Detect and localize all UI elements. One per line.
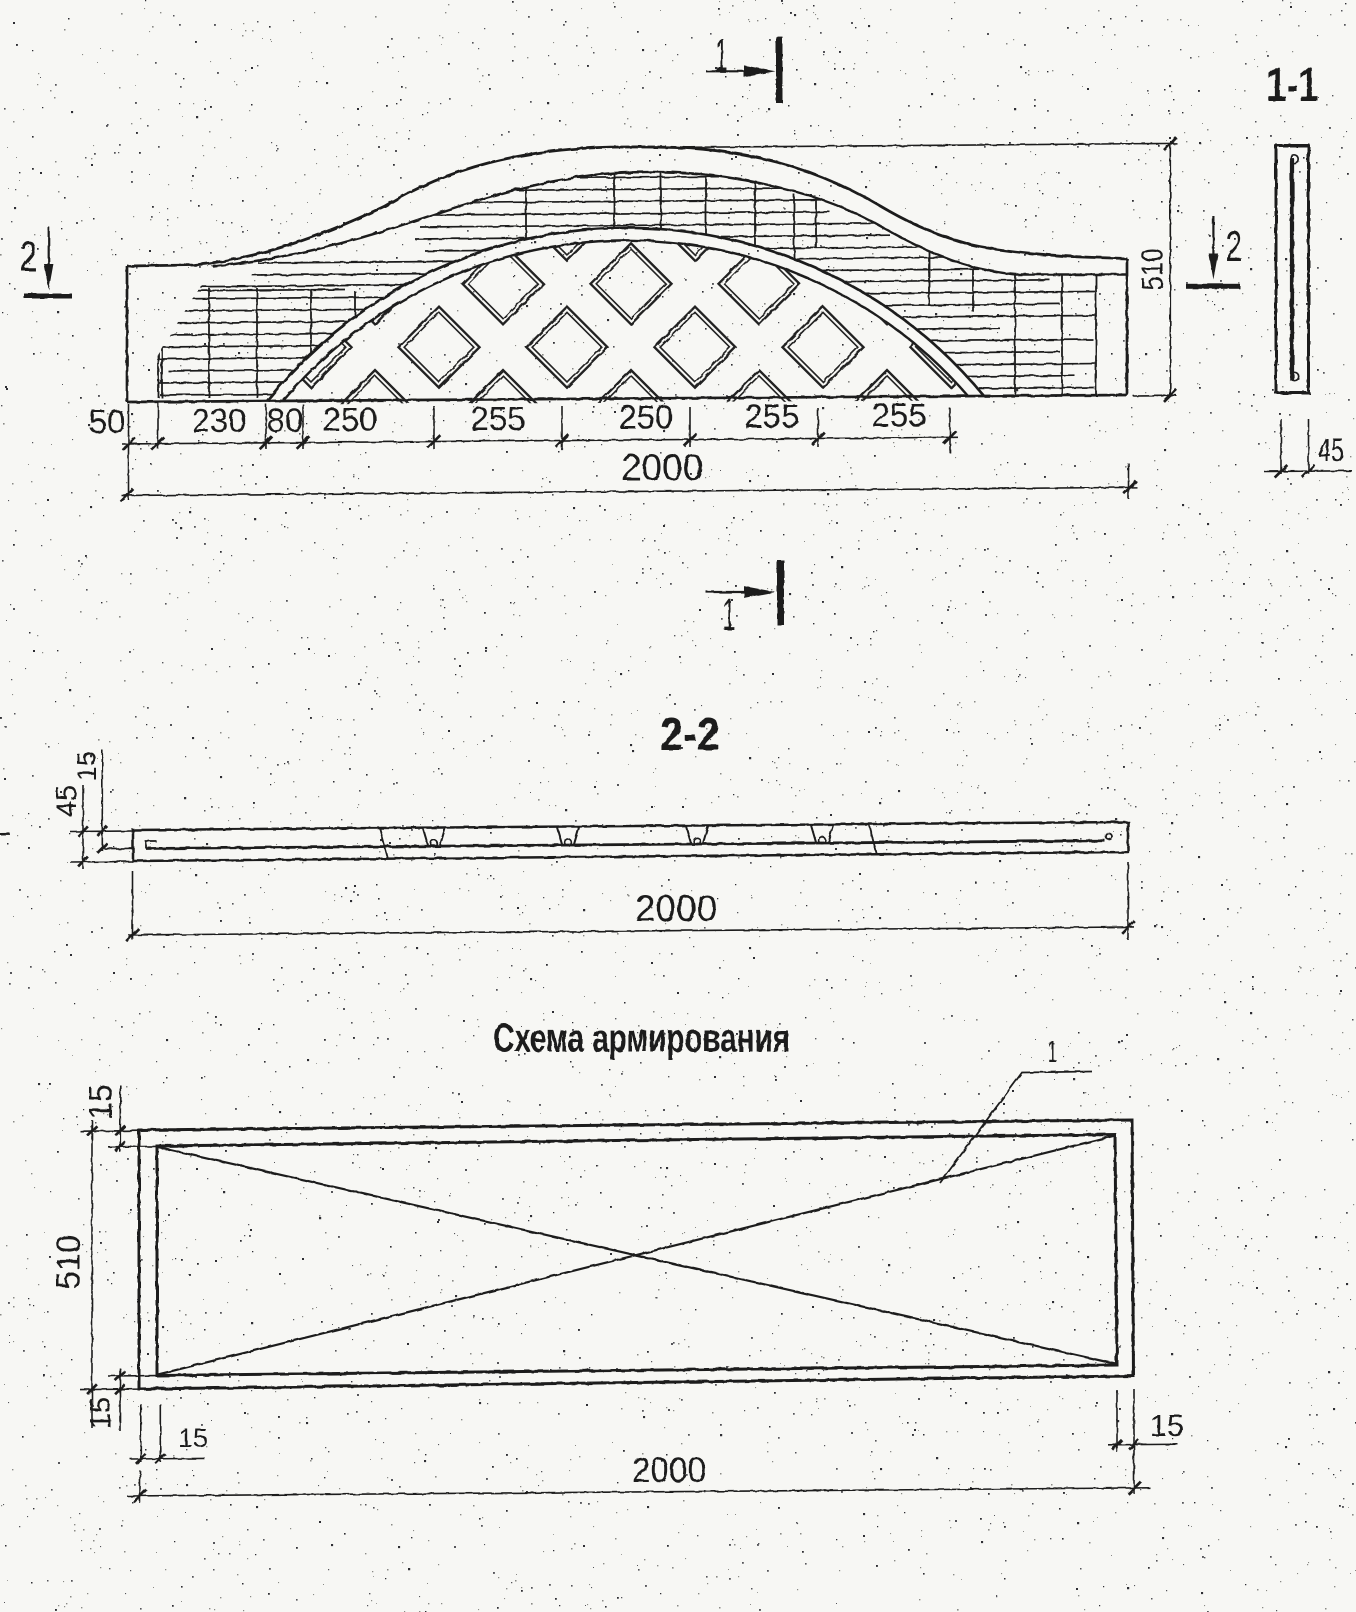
svg-text:Схема армирования: Схема армирования: [493, 1017, 790, 1061]
svg-text:1: 1: [716, 28, 728, 81]
svg-text:255: 255: [744, 398, 799, 435]
svg-text:2-2: 2-2: [660, 708, 720, 760]
svg-text:45: 45: [51, 785, 83, 817]
svg-text:15: 15: [1150, 1408, 1184, 1443]
svg-text:50: 50: [89, 403, 126, 440]
svg-text:15: 15: [85, 1397, 117, 1429]
svg-text:230: 230: [191, 402, 246, 439]
svg-text:255: 255: [470, 400, 525, 437]
svg-text:80: 80: [267, 402, 304, 439]
svg-text:15: 15: [178, 1423, 208, 1453]
svg-text:2: 2: [20, 233, 37, 281]
svg-text:255: 255: [871, 397, 926, 434]
svg-text:2000: 2000: [635, 888, 717, 929]
svg-text:2: 2: [1226, 223, 1243, 271]
svg-text:15: 15: [83, 1084, 119, 1120]
svg-text:2000: 2000: [632, 1451, 706, 1490]
svg-text:1: 1: [723, 589, 736, 640]
svg-text:510: 510: [50, 1234, 87, 1289]
svg-text:15: 15: [72, 751, 102, 781]
svg-text:2000: 2000: [621, 447, 703, 488]
svg-text:1: 1: [1048, 1034, 1057, 1069]
svg-text:250: 250: [618, 399, 673, 436]
svg-text:510: 510: [1135, 248, 1170, 290]
svg-text:1-1: 1-1: [1267, 59, 1319, 112]
svg-text:45: 45: [1318, 432, 1344, 469]
svg-text:250: 250: [322, 401, 377, 438]
